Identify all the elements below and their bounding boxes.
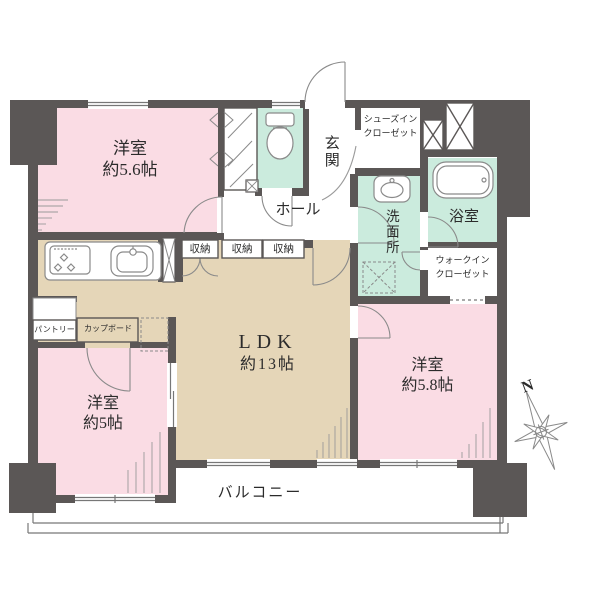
entrance-opening [305, 99, 345, 109]
washroom-label: 洗面所 [382, 201, 399, 263]
window-balcony-ldk-2 [317, 459, 357, 469]
bathroom-label: 浴室 [438, 208, 490, 227]
bedroom58-area: 約5.8帖 [360, 376, 495, 396]
bedroom56-name: 洋室 [60, 138, 200, 159]
ldk-label: LDK 約13帖 [188, 330, 348, 375]
ldk-name: LDK [188, 330, 348, 355]
balcony-railing [28, 513, 508, 533]
bedroom5-name: 洋室 [40, 394, 166, 414]
kitchen-counter [45, 242, 161, 280]
bedroom5-label: 洋室 約5帖 [40, 394, 166, 434]
entrance-label: 玄関 [321, 117, 340, 187]
bathtub-icon [433, 162, 493, 198]
storage3-label: 収納 [263, 243, 304, 256]
cupboard-label: カップボード [78, 324, 138, 334]
bedroom56-label: 洋室 約5.6帖 [60, 138, 200, 181]
wic-door-opening [420, 250, 428, 270]
storage2-label: 収納 [222, 243, 262, 256]
kitchen-side-shaft [163, 238, 175, 282]
window-top-toilet [272, 99, 300, 109]
floorplan: 洋室 約5.6帖 玄関 シューズイン クローゼット ホール 洗面所 浴室 ウォー… [0, 0, 600, 600]
bedroom58-name: 洋室 [360, 356, 495, 376]
window-balcony-bedroom5 [75, 494, 155, 504]
hall-label: ホール [258, 201, 338, 220]
window-top-bedroom56 [88, 99, 148, 109]
stove-icon [50, 246, 90, 274]
closet-bedroom56 [224, 108, 257, 190]
ldk-area: 約13帖 [188, 355, 348, 375]
window-balcony-ldk-1 [207, 459, 270, 469]
sliding-door-bedroom5-ldk [167, 363, 177, 427]
bedroom5-area: 約5帖 [40, 414, 166, 434]
meter-box [246, 180, 258, 192]
kitchen-sink-icon [111, 246, 153, 276]
floorplan-drawing [0, 0, 600, 600]
pantry-nook [33, 298, 76, 320]
bedroom58-label: 洋室 約5.8帖 [360, 356, 495, 396]
shoe-closet-label: シューズイン クローゼット [361, 112, 420, 141]
entrance-door-arc [305, 62, 345, 102]
balcony-label: バルコニー [190, 484, 330, 503]
window-balcony-bedroom58 [380, 459, 457, 469]
washbasin-icon [374, 176, 410, 202]
bedroom56-door-opening [217, 197, 225, 233]
storage1-label: 収納 [182, 243, 218, 256]
pantry-label: パントリー [33, 325, 76, 335]
wic-label: ウォークイン クローゼット [428, 253, 497, 282]
bedroom56-area: 約5.6帖 [60, 159, 200, 180]
toilet-icon [266, 113, 294, 159]
